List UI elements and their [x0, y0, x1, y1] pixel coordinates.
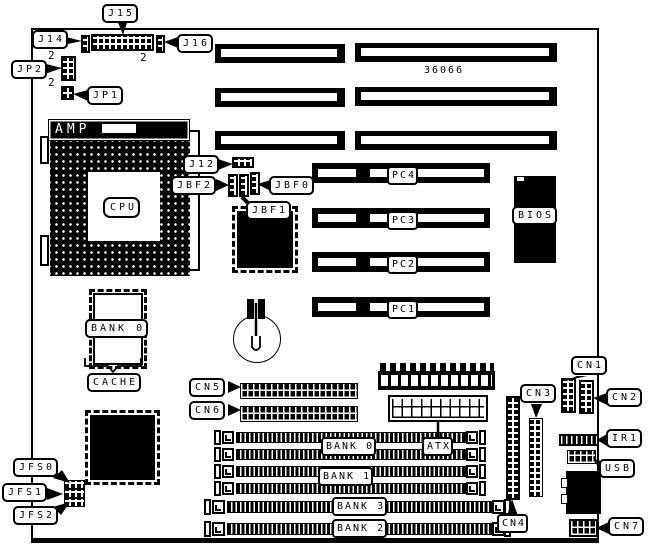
label-j16: J16	[177, 34, 213, 53]
simm2-right-bar	[479, 447, 486, 462]
simm1-left-bar	[214, 430, 221, 445]
label-j14: J14	[32, 30, 68, 49]
jbf-jumper-strip-2	[239, 174, 249, 197]
simm3-right-bar	[479, 464, 486, 479]
jfs2-jumper	[64, 498, 85, 507]
cn3-header	[529, 418, 543, 497]
j15-header	[91, 34, 154, 51]
motherboard-layout-diagram: 36066 AMP	[0, 0, 650, 546]
cn2-header	[579, 380, 594, 414]
label-jbf1: JBF1	[246, 201, 291, 220]
usb-header	[567, 450, 596, 464]
usb-port-tab-2	[561, 494, 568, 504]
label-bank0: BANK 0	[321, 437, 376, 456]
label-pc4: PC4	[387, 166, 418, 185]
label-cn6: CN6	[189, 401, 225, 420]
bios-chip-notch	[517, 177, 524, 181]
label-bank2: BANK 2	[332, 519, 387, 538]
cn6-header	[240, 406, 358, 422]
usb-port-connector	[566, 471, 601, 514]
part-number: 36066	[424, 65, 464, 76]
label-bios: BIOS	[512, 206, 557, 225]
simm5-left-bar	[204, 499, 211, 515]
j14-pin2-marker: 2	[48, 49, 55, 62]
label-jfs0: JFS0	[13, 458, 58, 477]
isa-slot-2-long	[355, 87, 557, 106]
label-cn3: CN3	[520, 384, 556, 403]
isa-slot-1-long	[355, 43, 557, 62]
label-jp2: JP2	[11, 60, 47, 79]
label-jbf0: JBF0	[269, 176, 314, 195]
at-power-connector	[378, 371, 495, 390]
amp-blank-plate	[102, 124, 136, 133]
label-cn1: CN1	[571, 356, 607, 375]
label-pc3: PC3	[387, 211, 418, 230]
simm3-right-latch	[466, 465, 478, 478]
simm6-left-bar	[204, 521, 211, 537]
label-jbf2: JBF2	[171, 176, 216, 195]
cn7-header	[569, 519, 598, 537]
label-j15: J15	[102, 4, 138, 23]
simm3-left-bar	[214, 464, 221, 479]
label-atx: ATX	[422, 437, 453, 456]
isa-slot-2-short	[215, 88, 345, 107]
jp2-header	[61, 56, 76, 81]
io-qfp-chip	[90, 415, 155, 480]
simm1-right-bar	[479, 430, 486, 445]
jp1-pin2-marker: 2	[48, 76, 55, 89]
simm2-left-latch	[222, 448, 234, 461]
label-usb: USB	[599, 459, 635, 478]
label-cpu: CPU	[103, 197, 140, 218]
jfs0-jumper	[64, 480, 85, 489]
label-ir1: IR1	[606, 429, 642, 448]
label-cn7: CN7	[608, 517, 644, 536]
cache-chip-2	[93, 336, 143, 365]
label-bank3: BANK 3	[332, 497, 387, 516]
j12-header	[232, 157, 254, 168]
simm1-left-latch	[222, 431, 234, 444]
simm6-left-latch	[212, 522, 225, 536]
cpu-mount-tab-bottom	[40, 235, 49, 266]
label-cn5: CN5	[189, 378, 225, 397]
jfs1-jumper	[64, 489, 85, 498]
ir1-header	[559, 434, 599, 446]
isa-slot-3-long	[355, 131, 557, 150]
simm5-left-latch	[212, 500, 225, 514]
simm4-right-latch	[466, 482, 478, 495]
label-jfs1: JFS1	[2, 483, 47, 502]
simm4-right-bar	[479, 481, 486, 496]
simm2-left-bar	[214, 447, 221, 462]
jbf-jumper-strip-1	[228, 174, 238, 197]
label-bank1: BANK 1	[318, 467, 373, 486]
battery	[233, 315, 281, 363]
label-cache: CACHE	[87, 373, 141, 392]
j16-header	[156, 35, 165, 53]
label-jp1: JP1	[87, 86, 123, 105]
simm4-left-latch	[222, 482, 234, 495]
label-pc2: PC2	[387, 255, 418, 274]
simm3-left-latch	[222, 465, 234, 478]
amp-label: AMP	[55, 122, 90, 137]
isa-slot-1-short	[215, 44, 345, 63]
usb-port-tab-1	[561, 478, 568, 488]
label-j12: J12	[183, 155, 219, 174]
cn5-header	[240, 383, 358, 399]
cn4-header	[506, 396, 520, 500]
simm2-right-latch	[466, 448, 478, 461]
label-cn4: CN4	[497, 514, 528, 533]
isa-slot-3-short	[215, 131, 345, 150]
simm4-left-bar	[214, 481, 221, 496]
label-cache-bank0: BANK 0	[85, 319, 148, 338]
j15-pin2-marker: 2	[140, 51, 147, 64]
atx-power-connector	[388, 395, 488, 422]
jbf-jumper-strip-3	[250, 172, 260, 195]
battery-clip	[247, 299, 265, 319]
simm5-right-bar	[504, 499, 511, 515]
simm1-right-latch	[466, 431, 478, 444]
label-pc1: PC1	[387, 300, 418, 319]
label-cn2: CN2	[606, 388, 642, 407]
cn1-header	[561, 378, 576, 413]
j14-header	[81, 35, 90, 53]
jp1-header	[61, 86, 74, 100]
label-jfs2: JFS2	[13, 506, 58, 525]
